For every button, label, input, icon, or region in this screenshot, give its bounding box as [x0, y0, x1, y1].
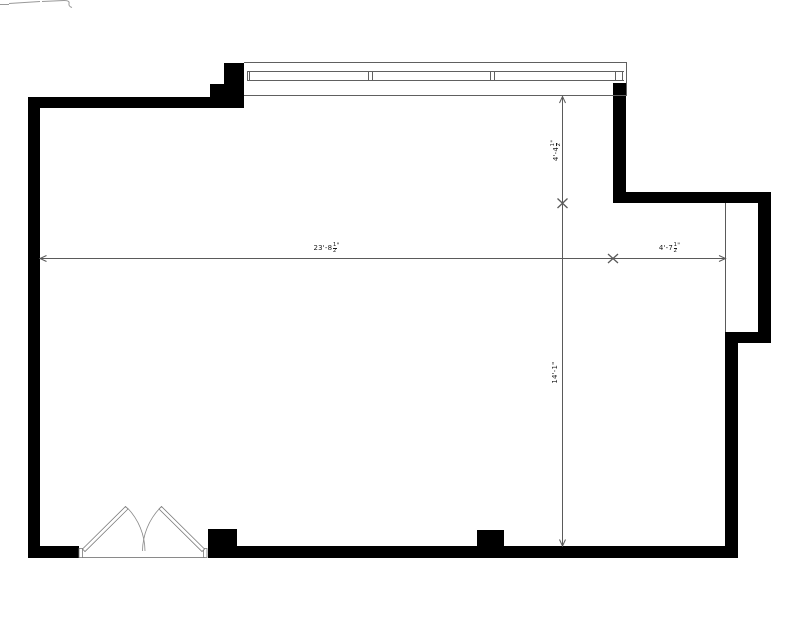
window-assembly: [244, 63, 627, 96]
fraction-numerator: 1: [551, 143, 556, 147]
dimension-value: 4'-4: [552, 147, 560, 161]
plan-linework: [0, 0, 800, 640]
dimension-label-width-right: 4'-712": [639, 241, 700, 254]
dimension-value: 14'-1": [551, 361, 559, 383]
inch-mark: ": [550, 140, 557, 143]
dimension-label-height-lower: 14'-1": [551, 342, 560, 403]
dimension-value: 23'-8: [314, 244, 333, 252]
window-mullion-1: [369, 71, 373, 81]
inch-mark: ": [677, 242, 680, 249]
door-frame-left: [79, 549, 83, 558]
edge-artifact-lines: [0, 1, 72, 8]
door-leaf-left: [83, 507, 129, 552]
dimension-label-height-upper: 4'-412": [549, 120, 562, 181]
dimension-label-width-left: 23'-812": [296, 241, 357, 254]
inch-mark: ": [337, 242, 340, 249]
window-mullion-2: [491, 71, 495, 81]
double-door: [79, 507, 207, 558]
door-leaf-right: [159, 507, 205, 552]
floor-plan-canvas: 23'-812" 4'-712" 4'-412" 14'-1": [0, 0, 800, 640]
fraction-denominator: 2: [556, 143, 562, 147]
window-left-end-mullion: [248, 71, 250, 81]
dimension-lines: [40, 97, 726, 547]
door-swing-arc-left: [128, 508, 146, 551]
dimension-value: 4'-7: [659, 244, 673, 252]
door-swing-arc-right: [143, 508, 161, 551]
window-right-end-mullion: [616, 71, 623, 81]
